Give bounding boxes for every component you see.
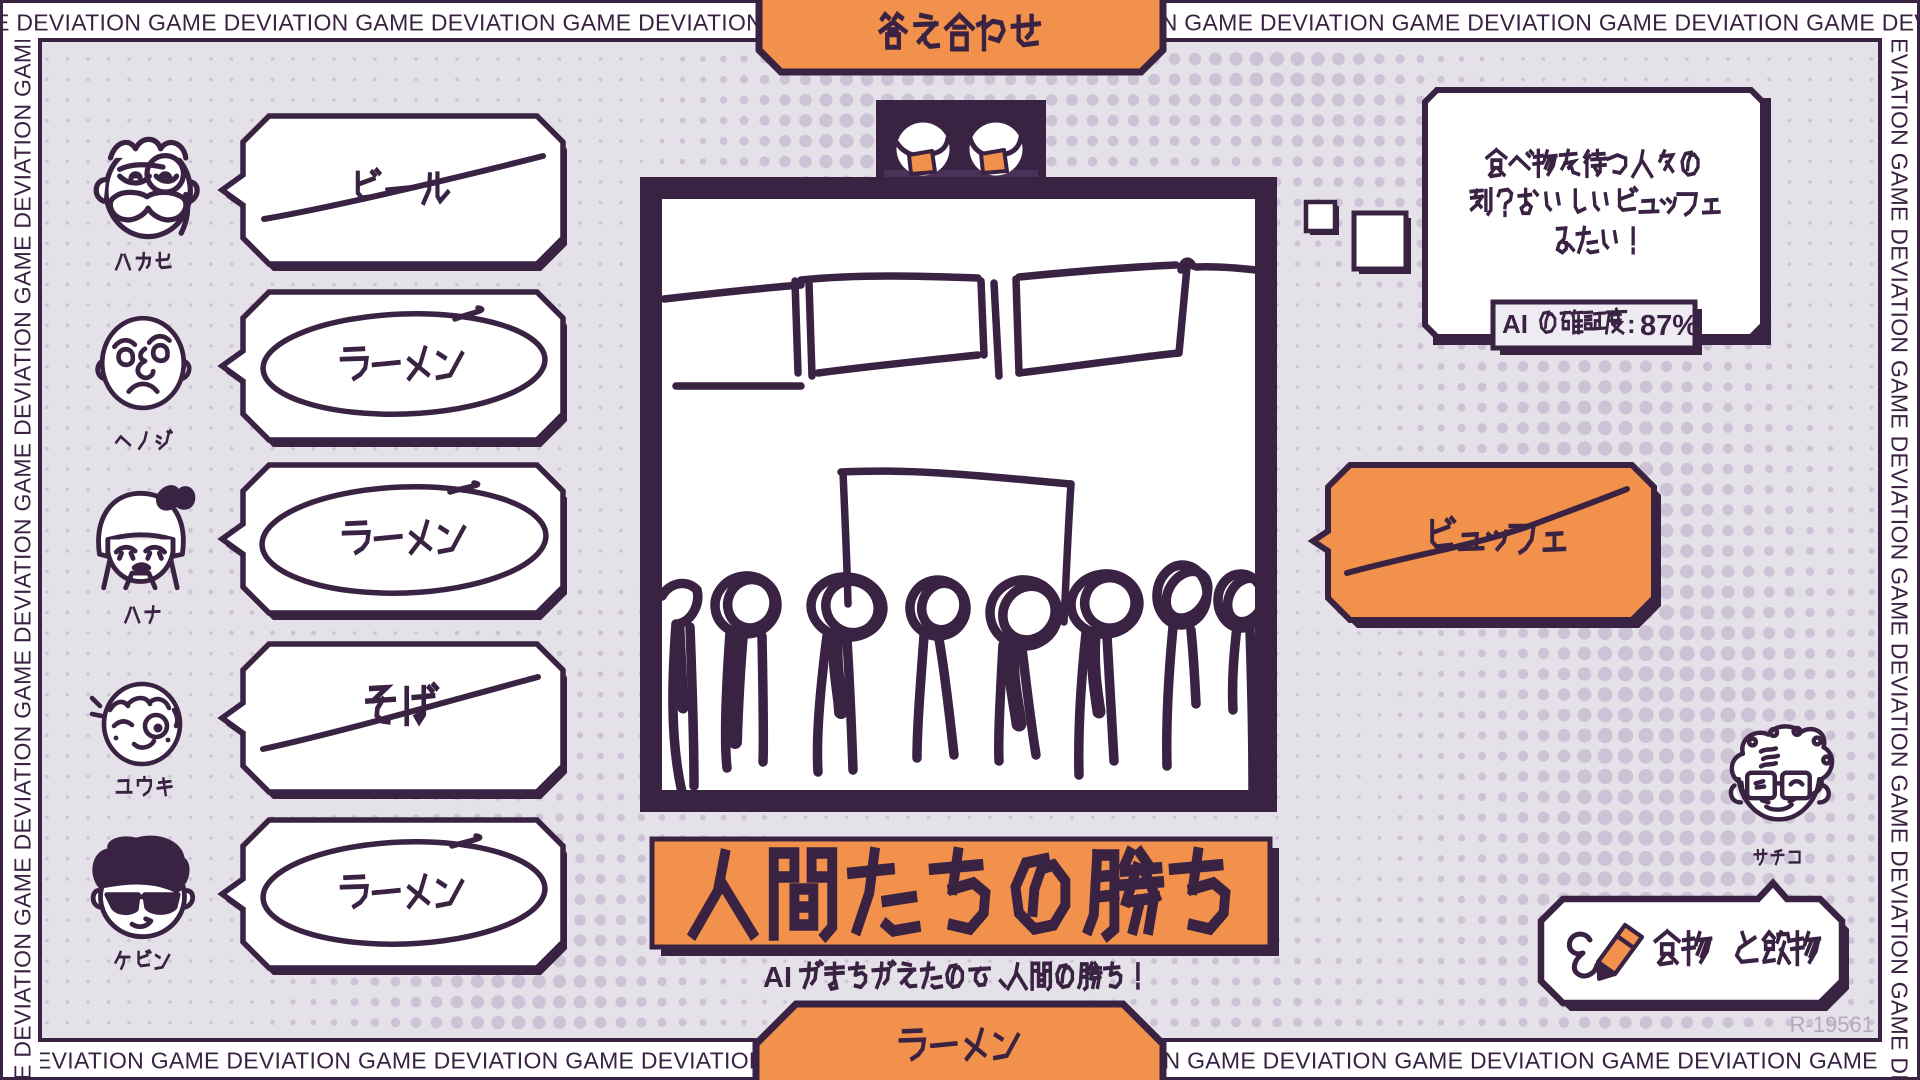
svg-text:AI: AI — [1502, 309, 1528, 339]
svg-text:R-19561: R-19561 — [1790, 1012, 1874, 1037]
svg-text:EVIATION GAME DEVIATION GAME D: EVIATION GAME DEVIATION GAME DEVIATION G… — [1887, 38, 1913, 1080]
svg-text:87%: 87% — [1640, 310, 1698, 342]
svg-text:AI: AI — [763, 962, 792, 994]
svg-text::: : — [1627, 309, 1636, 339]
svg-text:E DEVIATION GAME DEVIATION GAM: E DEVIATION GAME DEVIATION GAME DEVIATIO… — [10, 0, 36, 1080]
